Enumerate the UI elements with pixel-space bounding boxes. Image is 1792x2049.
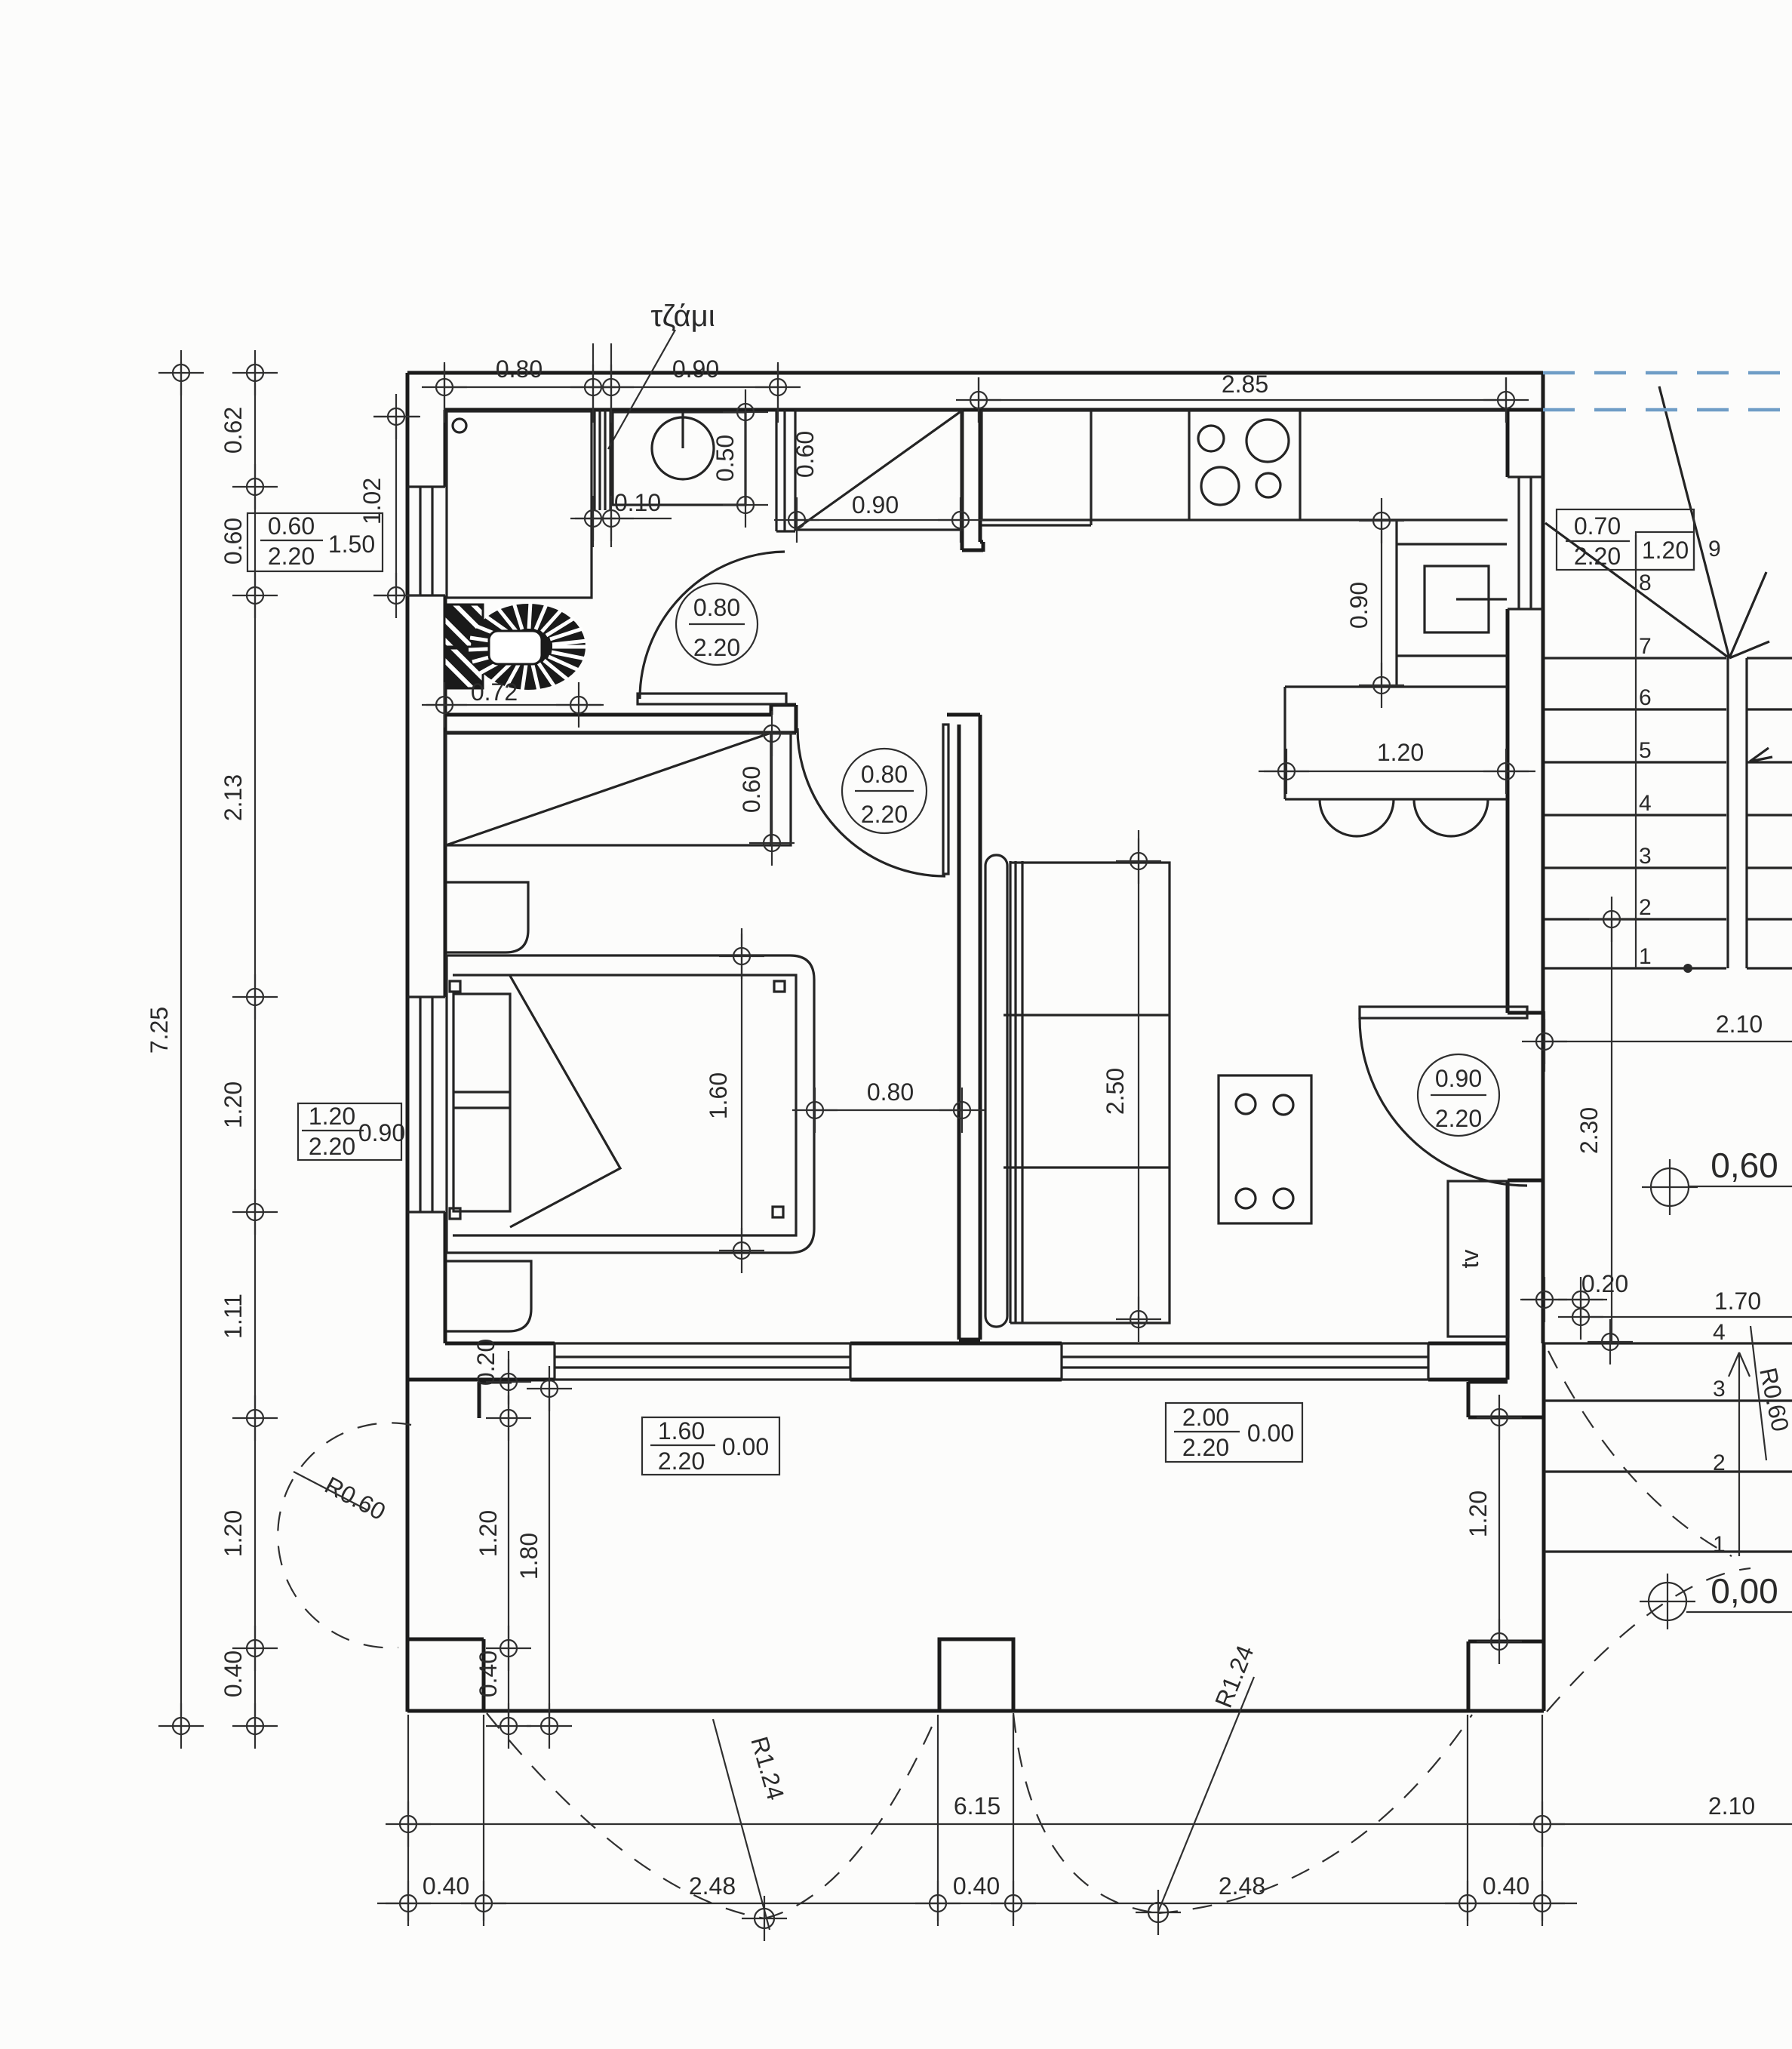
- svg-text:R0.60: R0.60: [321, 1471, 390, 1525]
- svg-text:2.20: 2.20: [268, 543, 315, 570]
- svg-text:4: 4: [1639, 791, 1652, 816]
- svg-text:1.20: 1.20: [1642, 537, 1689, 564]
- svg-text:0.60: 0.60: [791, 431, 819, 478]
- svg-text:1.20: 1.20: [309, 1103, 355, 1130]
- svg-text:1.20: 1.20: [1377, 739, 1424, 766]
- svg-text:0.40: 0.40: [1483, 1872, 1529, 1900]
- svg-text:0.00: 0.00: [722, 1433, 769, 1460]
- svg-text:7.25: 7.25: [146, 1007, 173, 1054]
- svg-text:2.48: 2.48: [1219, 1872, 1265, 1900]
- svg-text:4: 4: [1713, 1320, 1726, 1345]
- svg-text:2.13: 2.13: [220, 774, 247, 821]
- svg-text:0.20: 0.20: [1581, 1270, 1628, 1297]
- svg-text:R1.24: R1.24: [745, 1734, 789, 1803]
- svg-text:6.15: 6.15: [954, 1792, 1001, 1820]
- svg-text:2.20: 2.20: [1182, 1434, 1229, 1461]
- svg-text:7: 7: [1639, 634, 1652, 659]
- svg-text:0.90: 0.90: [1345, 582, 1372, 629]
- svg-text:2.50: 2.50: [1102, 1068, 1129, 1115]
- svg-text:2.85: 2.85: [1222, 371, 1268, 398]
- svg-text:0,00: 0,00: [1711, 1571, 1778, 1611]
- svg-text:0.40: 0.40: [220, 1651, 247, 1697]
- svg-text:0.80: 0.80: [867, 1078, 914, 1106]
- svg-text:R1.24: R1.24: [1210, 1641, 1259, 1712]
- svg-text:2.20: 2.20: [309, 1133, 355, 1160]
- svg-text:2.30: 2.30: [1575, 1107, 1603, 1154]
- svg-text:0.50: 0.50: [712, 435, 739, 481]
- svg-text:2.20: 2.20: [1435, 1105, 1482, 1132]
- svg-text:0.40: 0.40: [423, 1872, 469, 1900]
- svg-text:1.20: 1.20: [220, 1081, 247, 1128]
- svg-text:0.40: 0.40: [475, 1651, 502, 1697]
- svg-text:9: 9: [1708, 537, 1721, 561]
- svg-text:2.20: 2.20: [693, 634, 740, 661]
- svg-text:1.70: 1.70: [1714, 1288, 1761, 1315]
- svg-text:0.20: 0.20: [472, 1339, 499, 1386]
- svg-text:2.20: 2.20: [861, 801, 908, 828]
- svg-text:2.10: 2.10: [1708, 1792, 1755, 1820]
- svg-text:5: 5: [1639, 738, 1652, 763]
- svg-text:0.00: 0.00: [1247, 1420, 1294, 1447]
- svg-text:1.20: 1.20: [475, 1510, 502, 1557]
- svg-text:0.40: 0.40: [953, 1872, 1000, 1900]
- svg-text:2.48: 2.48: [689, 1872, 736, 1900]
- svg-text:3: 3: [1639, 844, 1652, 869]
- svg-text:0.60: 0.60: [738, 766, 765, 813]
- svg-text:1.80: 1.80: [515, 1533, 543, 1580]
- svg-text:0.90: 0.90: [1435, 1065, 1482, 1092]
- svg-text:6: 6: [1639, 685, 1652, 710]
- svg-text:1.20: 1.20: [220, 1510, 247, 1557]
- svg-text:0.80: 0.80: [693, 594, 740, 621]
- svg-text:1.50: 1.50: [328, 531, 375, 558]
- svg-text:1.20: 1.20: [1465, 1491, 1492, 1537]
- svg-text:2: 2: [1639, 895, 1652, 920]
- svg-text:0.60: 0.60: [268, 512, 315, 540]
- svg-text:1: 1: [1639, 944, 1652, 969]
- svg-text:0.70: 0.70: [1574, 512, 1621, 540]
- svg-text:τζάμι: τζάμι: [650, 300, 715, 333]
- svg-text:0.80: 0.80: [861, 761, 908, 788]
- svg-text:0.90: 0.90: [672, 355, 719, 383]
- svg-text:0.90: 0.90: [852, 491, 899, 518]
- svg-text:2: 2: [1713, 1451, 1726, 1475]
- svg-text:0.62: 0.62: [220, 407, 247, 454]
- svg-text:8: 8: [1639, 571, 1652, 595]
- svg-text:0.60: 0.60: [220, 518, 247, 565]
- svg-text:1.02: 1.02: [358, 478, 386, 525]
- svg-text:tv: tv: [1456, 1250, 1483, 1269]
- svg-text:0.80: 0.80: [496, 355, 543, 383]
- svg-text:2.20: 2.20: [1574, 543, 1621, 570]
- svg-text:0.90: 0.90: [358, 1119, 405, 1146]
- svg-text:2.20: 2.20: [658, 1448, 705, 1475]
- svg-text:1: 1: [1713, 1532, 1726, 1557]
- svg-text:2.10: 2.10: [1716, 1011, 1763, 1038]
- svg-text:1.60: 1.60: [705, 1072, 732, 1119]
- svg-text:2.00: 2.00: [1182, 1404, 1229, 1431]
- svg-text:3: 3: [1713, 1377, 1726, 1401]
- svg-text:0.10: 0.10: [614, 489, 661, 516]
- svg-text:0,60: 0,60: [1711, 1146, 1778, 1185]
- svg-text:0.72: 0.72: [471, 678, 518, 706]
- svg-text:1.60: 1.60: [658, 1417, 705, 1444]
- svg-text:1.11: 1.11: [220, 1294, 247, 1339]
